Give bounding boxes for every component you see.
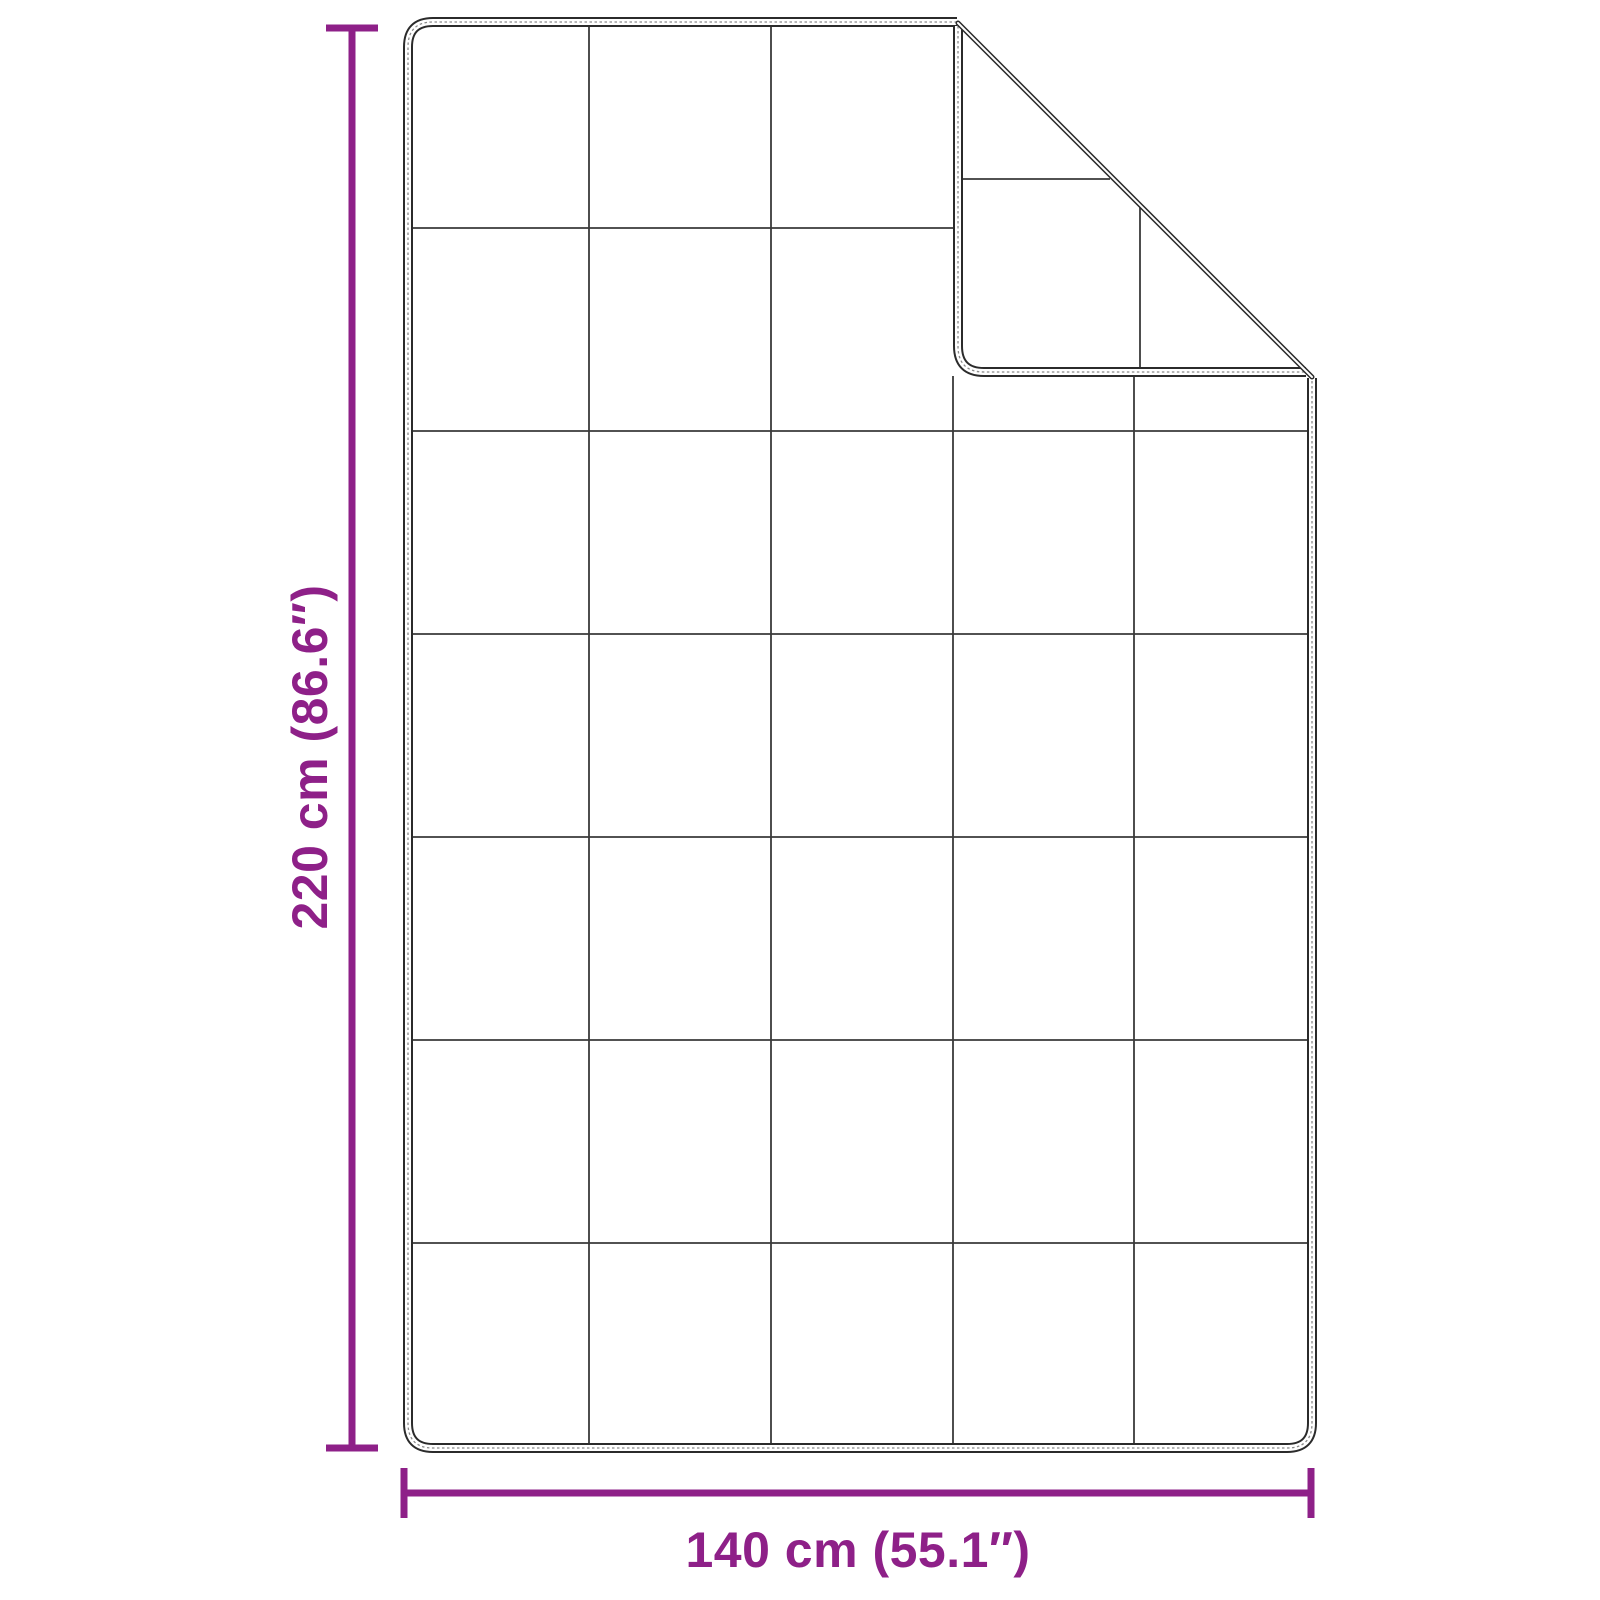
height-dimension-label: 220 cm (86.6″) (282, 584, 338, 929)
height-dimension: 220 cm (86.6″) (282, 28, 378, 1448)
blanket-edge-stitching (408, 22, 1312, 1448)
blanket-edge-gap (408, 22, 1312, 1448)
width-dimension: 140 cm (55.1″) (404, 1468, 1311, 1578)
blanket-edge-outer-line (408, 22, 1312, 1448)
quilt-grid-horizontal-lines (410, 228, 1310, 1243)
blanket-outline (408, 22, 1312, 1448)
folded-corner-flap (958, 23, 1312, 377)
width-dimension-label: 140 cm (55.1″) (685, 1522, 1030, 1578)
blanket-dimension-diagram: 220 cm (86.6″) 140 cm (55.1″) (0, 0, 1600, 1600)
diagram-canvas: 220 cm (86.6″) 140 cm (55.1″) (0, 0, 1600, 1600)
